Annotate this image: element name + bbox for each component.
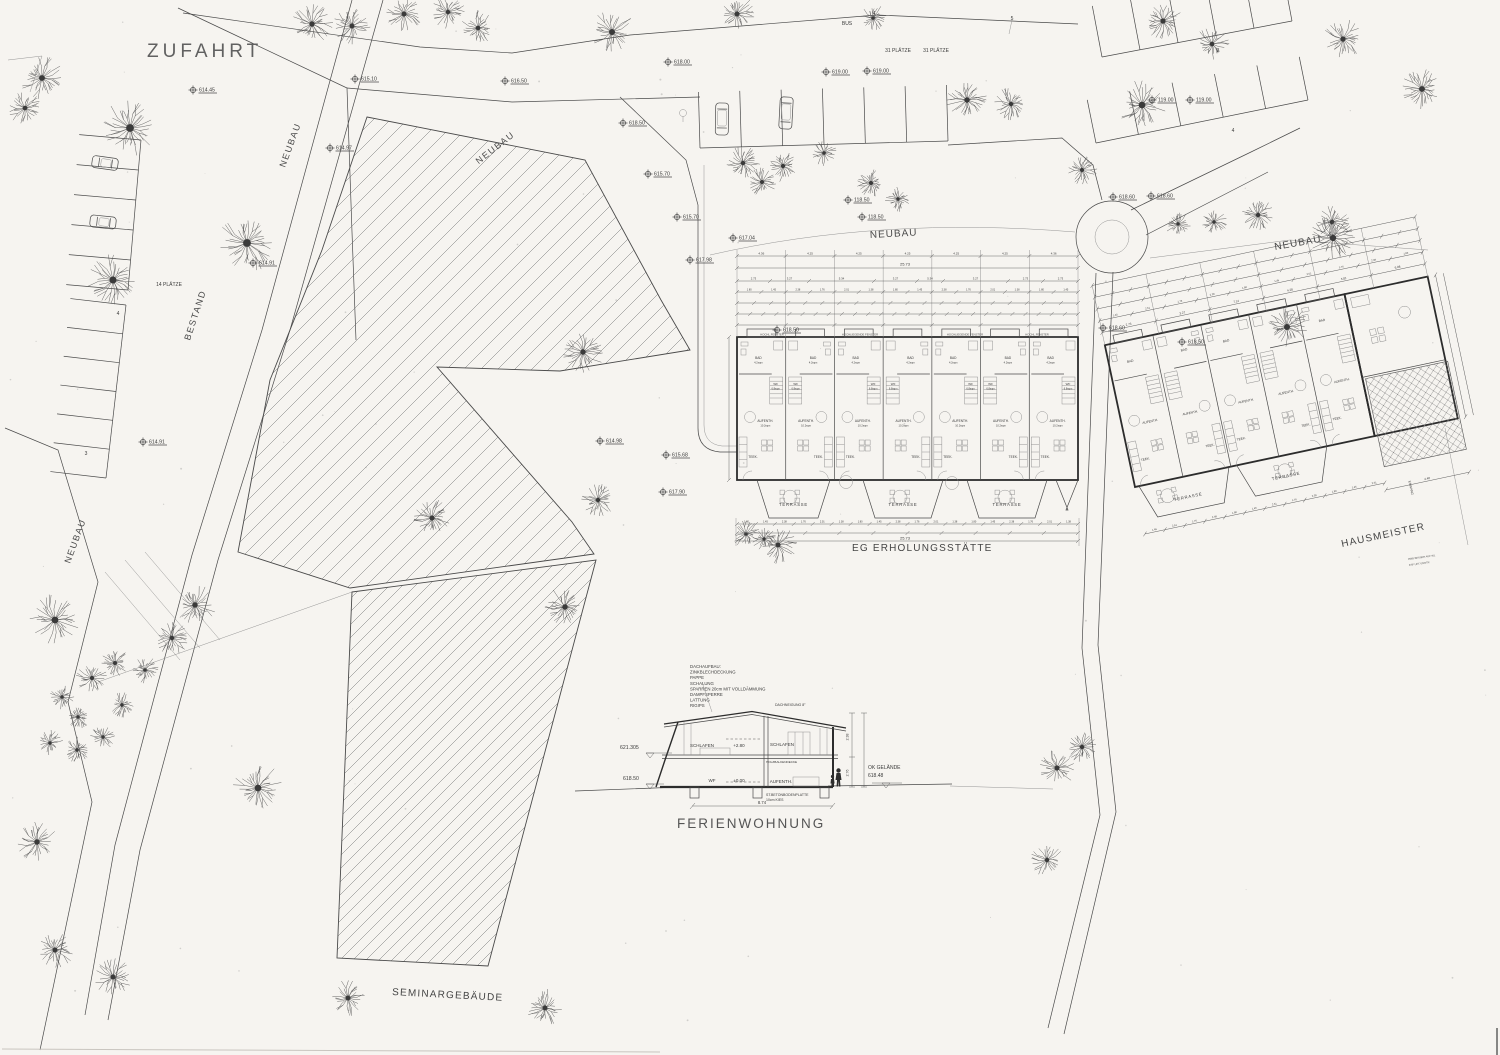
dim-tick bbox=[1369, 273, 1374, 278]
tree-branch bbox=[342, 981, 348, 996]
tree-twig bbox=[201, 602, 207, 603]
tree bbox=[858, 170, 881, 196]
elevation-value: 617.04 bbox=[739, 236, 755, 242]
tree-branch bbox=[759, 540, 763, 549]
bus-label: BUS bbox=[842, 21, 853, 27]
dim-tick bbox=[1348, 253, 1353, 258]
tree-twig bbox=[1318, 222, 1324, 224]
tree-twig bbox=[124, 285, 130, 293]
tree-trunk bbox=[192, 602, 197, 607]
tree bbox=[23, 58, 61, 99]
tree bbox=[1318, 206, 1349, 238]
tree-branch bbox=[406, 9, 415, 13]
dim-tick bbox=[1325, 258, 1330, 263]
bay-window bbox=[893, 329, 922, 337]
terrace-chair bbox=[1171, 487, 1176, 492]
elevation-value: 618.60 bbox=[1109, 326, 1125, 332]
linework bbox=[60, 385, 116, 391]
tree-twig bbox=[322, 29, 327, 36]
linework bbox=[1242, 358, 1255, 361]
bath-fixture bbox=[1033, 342, 1040, 346]
dimension-label: 2.38 bbox=[795, 289, 800, 292]
tree-twig bbox=[25, 99, 27, 103]
dimension-label: 2.01 bbox=[933, 521, 938, 524]
tree-twig bbox=[543, 992, 545, 999]
tree-twig bbox=[873, 177, 876, 179]
tree-branch bbox=[242, 779, 255, 787]
terrace-chair bbox=[1010, 490, 1015, 495]
dim-tick bbox=[1361, 238, 1366, 243]
dimension-label: 3.27 bbox=[893, 277, 899, 281]
tree-trunk bbox=[580, 349, 585, 354]
dim-tick bbox=[1379, 234, 1384, 239]
tree-twig bbox=[611, 15, 614, 22]
shower bbox=[1142, 340, 1153, 351]
dinette-chair bbox=[963, 440, 968, 445]
speckle bbox=[124, 72, 125, 73]
tree-twig bbox=[480, 20, 484, 23]
roads-and-boundaries bbox=[2, 0, 1497, 1055]
dim-tick bbox=[1222, 515, 1227, 520]
speckle bbox=[238, 970, 240, 972]
terrasse-label: TERRASSE bbox=[993, 502, 1022, 507]
tree-trunk bbox=[476, 26, 481, 31]
tree-twig bbox=[257, 767, 261, 776]
linework bbox=[1228, 443, 1236, 445]
tree-twig bbox=[603, 498, 608, 499]
elevation-marker: 618.50 bbox=[1178, 338, 1207, 347]
tree-trunk bbox=[101, 735, 104, 738]
parking-left-lower bbox=[50, 299, 126, 478]
dimension-label: 4.25 bbox=[905, 252, 911, 256]
tree-twig bbox=[1333, 228, 1334, 233]
room-label-bad: BAD bbox=[853, 356, 860, 360]
tree-twig bbox=[317, 9, 324, 14]
linework bbox=[1146, 274, 1159, 334]
tree bbox=[582, 484, 611, 515]
dimension-label: 4.25 bbox=[807, 252, 813, 256]
linework bbox=[740, 91, 742, 147]
tree-branch bbox=[123, 702, 131, 704]
room-label-aufenth: AUFENTH. bbox=[1278, 389, 1295, 396]
lamp-symbol bbox=[680, 110, 687, 117]
tree bbox=[91, 728, 115, 747]
tree-twig bbox=[38, 616, 45, 620]
linework bbox=[946, 85, 948, 141]
tree-twig bbox=[966, 88, 968, 93]
tree-twig bbox=[78, 755, 79, 759]
tree bbox=[885, 187, 908, 211]
tree-trunk bbox=[1210, 42, 1215, 47]
dim-tick bbox=[1420, 250, 1425, 255]
dinette-chair bbox=[999, 440, 1004, 445]
terrace-chair bbox=[1288, 462, 1293, 467]
tree-branch bbox=[94, 678, 104, 679]
tree-branch bbox=[146, 671, 149, 677]
door-swing bbox=[1014, 471, 1023, 480]
dinette-chair bbox=[865, 440, 870, 445]
linework bbox=[1299, 57, 1308, 100]
linework bbox=[1244, 0, 1254, 28]
tree-branch bbox=[1289, 329, 1296, 338]
dimension-label: 2.01 bbox=[844, 289, 849, 292]
room-label-wf: WF bbox=[871, 382, 876, 386]
tree-twig bbox=[178, 645, 179, 653]
dim-tick bbox=[1226, 291, 1231, 296]
speckle bbox=[675, 95, 676, 96]
tree-twig bbox=[65, 619, 72, 622]
room-area-aufenth: 10.2sqm bbox=[1053, 424, 1063, 428]
elevation-marker: 119.00 bbox=[1186, 96, 1215, 105]
dim-tick bbox=[1254, 261, 1259, 266]
elevation-marker: 619.00 bbox=[822, 68, 851, 77]
room-label-bad: BAD bbox=[907, 356, 914, 360]
linework bbox=[1311, 417, 1319, 419]
elevation-value: 615.70 bbox=[683, 215, 699, 221]
tree-trunk bbox=[760, 180, 764, 184]
tree-branch bbox=[349, 1000, 358, 1010]
linework bbox=[864, 87, 866, 143]
court-table bbox=[840, 476, 853, 489]
tree-twig bbox=[182, 613, 189, 616]
speckle bbox=[1075, 674, 1076, 675]
table-round bbox=[1011, 412, 1022, 423]
dim-tick bbox=[1200, 272, 1205, 277]
tree-branch bbox=[260, 783, 281, 788]
eingang-label: EINGANG bbox=[1408, 480, 1415, 495]
plan-canvas: BAD4.2sqmWF6.8sqmAUFENTH.10.2sqmTEEK.BAD… bbox=[0, 0, 1500, 1055]
tree-twig bbox=[1070, 749, 1076, 750]
elevation-marker: 614.45 bbox=[189, 86, 218, 95]
bath-fixture bbox=[1020, 349, 1025, 355]
elevation-marker: 118.50 bbox=[858, 213, 887, 222]
terrace-outline bbox=[1237, 446, 1334, 498]
plaetze14-label: 14 PLÄTZE bbox=[156, 281, 183, 288]
linework bbox=[1213, 430, 1221, 432]
linework bbox=[1361, 228, 1374, 288]
dim-tick bbox=[1141, 297, 1146, 302]
tree-twig bbox=[143, 660, 144, 665]
tree-branch bbox=[111, 106, 128, 126]
tree-branch bbox=[247, 221, 248, 240]
van-symbol bbox=[779, 97, 794, 130]
tree-branch bbox=[1334, 215, 1347, 222]
tree-branch bbox=[611, 34, 612, 51]
dim-tick bbox=[1110, 291, 1115, 296]
dimension-label: 1.38 bbox=[1015, 289, 1020, 292]
linework bbox=[1282, 0, 1292, 21]
linework bbox=[1342, 355, 1355, 358]
door-swing bbox=[1035, 471, 1044, 480]
tree bbox=[1243, 201, 1273, 229]
tree bbox=[763, 529, 797, 563]
turnaround-inner bbox=[1095, 220, 1129, 254]
tree-twig bbox=[82, 678, 87, 679]
linework bbox=[91, 155, 118, 171]
tree-twig bbox=[1160, 31, 1163, 38]
elevation-value: 614.45 bbox=[199, 88, 215, 94]
room-label-teek: TEEK. bbox=[1332, 416, 1342, 422]
stall-number-4c: 4 bbox=[1232, 128, 1235, 134]
tree-twig bbox=[782, 158, 783, 162]
tree-branch bbox=[819, 142, 824, 151]
tree-branch bbox=[104, 736, 114, 738]
tree-branch bbox=[614, 33, 625, 42]
tree bbox=[434, 0, 465, 28]
road-to-turnaround bbox=[948, 138, 1102, 200]
tree-branch bbox=[401, 16, 403, 31]
room-label-bad: BAD bbox=[950, 356, 957, 360]
footpath-edge-2 bbox=[1064, 272, 1116, 1034]
room-label-aufenth: AUFENTH. bbox=[1142, 418, 1159, 425]
door-swing bbox=[819, 471, 828, 480]
tree-branch bbox=[61, 698, 62, 709]
tree-trunk bbox=[543, 1006, 548, 1011]
dim-tick bbox=[1242, 510, 1247, 515]
tree bbox=[528, 989, 561, 1024]
speckle bbox=[1418, 846, 1419, 847]
level-upper-label: +2.80 bbox=[733, 743, 745, 748]
table-round bbox=[913, 412, 924, 423]
door-swing bbox=[917, 471, 926, 480]
dim-tick bbox=[1325, 245, 1330, 250]
bath-fixture bbox=[1206, 327, 1214, 332]
tree-twig bbox=[1341, 219, 1348, 221]
speckle bbox=[1478, 470, 1479, 471]
dim-tick bbox=[1236, 264, 1241, 269]
room-label-wf: WF bbox=[793, 382, 798, 386]
room-label-bad: BAD bbox=[1047, 356, 1054, 360]
linework bbox=[1341, 350, 1354, 353]
linework bbox=[1254, 251, 1267, 311]
dimension-label: 2.73 bbox=[1058, 277, 1064, 281]
dim-tick bbox=[1164, 280, 1169, 285]
dinette-chair bbox=[1060, 440, 1065, 445]
speckle bbox=[687, 1019, 689, 1021]
tree-twig bbox=[770, 536, 775, 537]
tree-branch bbox=[763, 183, 774, 189]
dim-tick bbox=[1146, 283, 1151, 288]
room-label-aufenth: AUFENTH. bbox=[1050, 419, 1066, 423]
tree-twig bbox=[255, 237, 263, 238]
bath-fixture bbox=[741, 342, 748, 346]
tree-branch bbox=[347, 1000, 349, 1013]
tree-twig bbox=[135, 109, 144, 116]
tree-twig bbox=[61, 615, 67, 616]
tree-branch bbox=[116, 280, 135, 281]
tree-twig bbox=[1004, 113, 1009, 118]
tree-branch bbox=[38, 844, 47, 851]
tree-branch bbox=[1287, 313, 1288, 324]
cabinet bbox=[1350, 294, 1370, 308]
speckle bbox=[231, 745, 233, 747]
tree-trunk bbox=[170, 636, 174, 640]
speckle bbox=[1358, 557, 1359, 558]
person-adult-head bbox=[836, 768, 840, 772]
tree-twig bbox=[457, 10, 464, 12]
tree-trunk bbox=[53, 948, 58, 953]
tree-branch bbox=[196, 586, 199, 603]
tree bbox=[750, 168, 775, 194]
tree-twig bbox=[879, 17, 884, 19]
tree-branch bbox=[1135, 81, 1142, 102]
tree-branch bbox=[1246, 216, 1257, 222]
tree-branch bbox=[53, 952, 54, 961]
car-symbol bbox=[91, 155, 118, 171]
tree-twig bbox=[1429, 91, 1433, 95]
tree-twig bbox=[1344, 234, 1353, 236]
tree-twig bbox=[404, 5, 406, 9]
room-label-teek: TEEK. bbox=[1041, 455, 1050, 459]
speckle bbox=[623, 524, 625, 526]
shower bbox=[1334, 299, 1345, 310]
elevation-marker: 617.98 bbox=[686, 256, 715, 265]
speckle bbox=[618, 718, 620, 720]
tree-branch bbox=[116, 664, 121, 670]
tree-trunk bbox=[39, 75, 45, 81]
dinette-chair bbox=[1151, 440, 1157, 446]
tree-branch bbox=[174, 638, 182, 639]
linework bbox=[1262, 359, 1275, 362]
speckle bbox=[1484, 669, 1486, 671]
tree-trunk bbox=[1045, 858, 1049, 862]
tree-twig bbox=[479, 14, 483, 20]
tree-branch bbox=[734, 164, 742, 172]
tree-branch bbox=[35, 622, 53, 633]
dinette-chair bbox=[1350, 404, 1356, 410]
level-zero-label: ±0.00 bbox=[733, 778, 745, 783]
tree bbox=[76, 667, 106, 692]
speckle bbox=[127, 171, 128, 172]
tree-branch bbox=[784, 153, 789, 164]
table-round bbox=[1198, 399, 1211, 412]
room-area-bad: 4.2sqm bbox=[754, 361, 763, 365]
linework bbox=[1115, 374, 1147, 381]
elevation-value: 618.00 bbox=[674, 60, 690, 66]
ferienwohnung-label: FERIENWOHNUNG bbox=[677, 816, 825, 831]
dimension-label: 1.80 bbox=[971, 521, 976, 524]
speckle bbox=[1350, 110, 1351, 111]
tree-branch bbox=[354, 25, 368, 27]
tree-branch bbox=[21, 110, 25, 123]
elevation-value: 618.60 bbox=[1119, 195, 1135, 201]
tree-twig bbox=[10, 106, 16, 109]
dinette-chair bbox=[1158, 444, 1164, 450]
tree-twig bbox=[813, 155, 818, 156]
tree-branch bbox=[174, 633, 184, 637]
stall-number-3b: 3 bbox=[1217, 48, 1220, 54]
room-label-teek: TEEK. bbox=[911, 455, 920, 459]
tree-twig bbox=[1411, 95, 1417, 98]
dimension-label: 4.36 bbox=[1051, 252, 1057, 256]
linework bbox=[1312, 425, 1320, 427]
linework bbox=[1167, 383, 1180, 386]
speckle bbox=[205, 173, 206, 174]
shower bbox=[789, 341, 798, 350]
linework bbox=[1249, 315, 1279, 457]
tree-twig bbox=[354, 14, 358, 19]
tree-twig bbox=[861, 176, 865, 181]
footpath-branch bbox=[950, 786, 1053, 789]
diagonal-boundary bbox=[98, 592, 352, 682]
tree-branch bbox=[995, 102, 1010, 104]
tree-branch bbox=[822, 154, 823, 163]
tree-branch bbox=[1048, 862, 1052, 871]
tree-twig bbox=[1343, 231, 1352, 232]
linework bbox=[1264, 371, 1277, 374]
room-area-wf: 6.8sqm bbox=[986, 387, 995, 391]
tree-trunk bbox=[741, 161, 745, 165]
tree-trunk bbox=[52, 617, 59, 624]
tree-trunk bbox=[255, 785, 262, 792]
elevation-value: 618.50 bbox=[629, 121, 645, 127]
dim-tick bbox=[1467, 470, 1472, 475]
tree-branch bbox=[1424, 80, 1432, 88]
tree-trunk bbox=[1419, 86, 1425, 92]
tree-branch bbox=[1059, 769, 1068, 773]
linework bbox=[1200, 263, 1213, 323]
section-note: SPARREN 20cm MIT VOLLDÄMMUNG bbox=[690, 686, 766, 691]
dim-tick bbox=[1143, 532, 1148, 537]
tree-twig bbox=[45, 59, 52, 66]
tree-twig bbox=[111, 130, 120, 132]
tree-branch bbox=[50, 744, 51, 750]
dim-tick bbox=[1342, 489, 1347, 494]
room-area-aufenth: 10.2sqm bbox=[801, 424, 811, 428]
linework bbox=[1149, 391, 1162, 394]
tree-branch bbox=[1128, 91, 1141, 103]
elevation-marker: 615.70 bbox=[673, 213, 702, 222]
tree-branch bbox=[48, 623, 54, 644]
tree-branch bbox=[725, 15, 735, 22]
dim-tick bbox=[1118, 302, 1123, 307]
bath-fixture bbox=[838, 342, 845, 346]
tree-branch bbox=[1335, 237, 1354, 238]
shower bbox=[1157, 336, 1168, 347]
closet-doors bbox=[795, 732, 803, 755]
linework bbox=[67, 327, 123, 333]
tree-twig bbox=[1350, 41, 1354, 45]
shower bbox=[1238, 319, 1249, 330]
tree-branch bbox=[601, 33, 610, 36]
elevation-value: 614.91 bbox=[149, 440, 165, 446]
tree-branch bbox=[113, 124, 127, 128]
tree-twig bbox=[55, 940, 57, 944]
tree-twig bbox=[264, 784, 270, 785]
tree-twig bbox=[42, 85, 43, 91]
tree-branch bbox=[1154, 22, 1162, 33]
tree-twig bbox=[49, 82, 52, 88]
tree-branch bbox=[824, 145, 825, 151]
speckle bbox=[1007, 296, 1008, 297]
tree-twig bbox=[952, 93, 958, 98]
tree-branch bbox=[41, 744, 49, 749]
tree-trunk bbox=[1340, 36, 1345, 41]
tree bbox=[1032, 846, 1061, 874]
bath-fixture bbox=[1302, 307, 1310, 312]
tree-twig bbox=[119, 693, 120, 699]
room-label-bad: BAD bbox=[1127, 358, 1135, 363]
chair bbox=[1377, 327, 1384, 334]
bestand-road-label: BESTAND bbox=[182, 289, 208, 342]
linework bbox=[1130, 0, 1140, 50]
tree-trunk bbox=[1330, 220, 1335, 225]
tree-branch bbox=[223, 227, 245, 241]
dinette-chair bbox=[1054, 440, 1059, 445]
tree-branch bbox=[111, 129, 127, 135]
room-label-bad: BAD bbox=[1180, 347, 1188, 352]
tree-twig bbox=[1139, 81, 1142, 92]
